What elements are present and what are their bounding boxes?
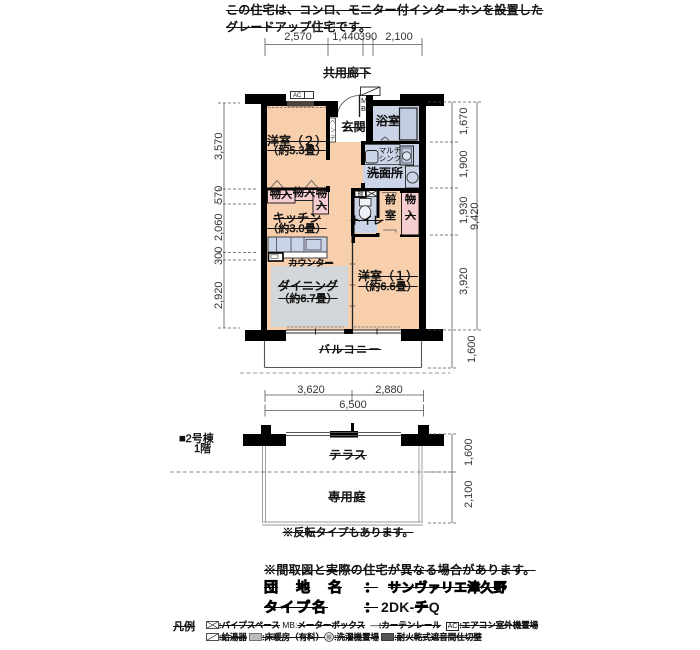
svg-text:3,920: 3,920 <box>458 267 470 295</box>
svg-text:9,420: 9,420 <box>469 202 481 230</box>
svg-text:1,600: 1,600 <box>463 438 475 466</box>
svg-text:1,670: 1,670 <box>458 107 470 135</box>
svg-text:300: 300 <box>213 247 225 265</box>
svg-text:2,920: 2,920 <box>213 281 225 309</box>
svg-text:2,060: 2,060 <box>213 213 225 241</box>
svg-text:3,570: 3,570 <box>213 132 225 160</box>
svg-text:570: 570 <box>213 186 225 204</box>
svg-text:1,900: 1,900 <box>458 150 470 178</box>
svg-text:2,100: 2,100 <box>463 480 475 508</box>
svg-text:1,600: 1,600 <box>466 335 478 363</box>
